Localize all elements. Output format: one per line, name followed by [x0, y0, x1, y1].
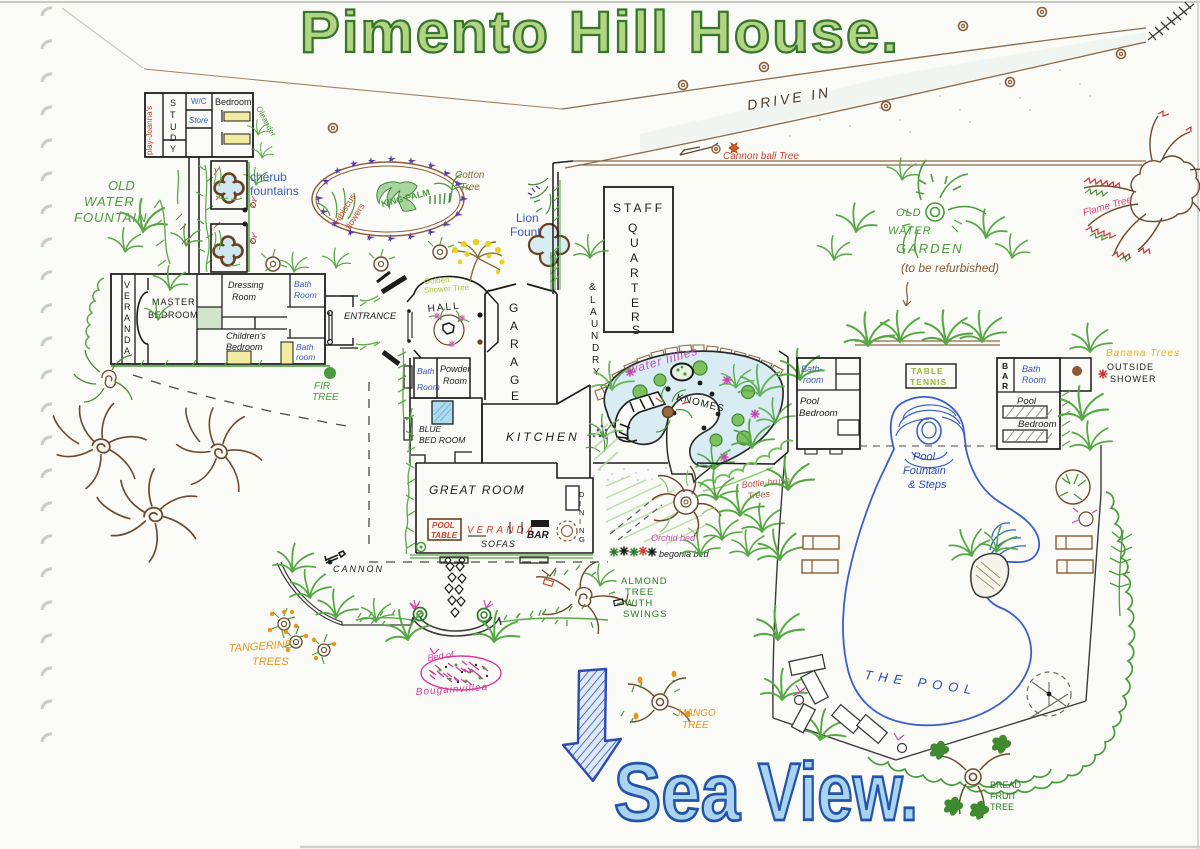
svg-text:WATER: WATER: [84, 194, 135, 209]
svg-text:Y: Y: [170, 144, 176, 154]
svg-text:BREAD: BREAD: [990, 780, 1022, 790]
svg-text:(to be refurbished): (to be refurbished): [901, 261, 999, 275]
svg-text:U: U: [170, 122, 177, 132]
svg-text:A: A: [124, 313, 130, 323]
svg-text:View.: View.: [758, 747, 918, 838]
svg-text:R: R: [510, 337, 519, 351]
svg-text:OUTSIDE: OUTSIDE: [1107, 362, 1154, 372]
svg-text:T: T: [631, 281, 639, 295]
svg-text:Children's: Children's: [226, 331, 266, 341]
svg-text:Bedroom: Bedroom: [1018, 419, 1057, 430]
svg-text:FOUNTAIN: FOUNTAIN: [74, 210, 147, 225]
svg-text:Cannon ball Tree: Cannon ball Tree: [723, 151, 799, 162]
svg-text:OLD: OLD: [108, 178, 135, 193]
svg-text:D: D: [124, 335, 131, 345]
svg-text:W/C: W/C: [191, 97, 207, 106]
svg-text:Room: Room: [294, 290, 317, 300]
svg-text:G: G: [510, 373, 519, 387]
svg-text:A: A: [630, 251, 638, 265]
svg-text:Room: Room: [417, 382, 440, 392]
svg-text:Bath: Bath: [1022, 364, 1041, 374]
svg-text:N: N: [579, 526, 584, 535]
svg-text:U: U: [630, 236, 639, 250]
svg-text:TENNIS: TENNIS: [910, 377, 947, 387]
svg-text:Room: Room: [1022, 375, 1047, 385]
svg-text:D: D: [170, 133, 177, 143]
svg-text:G: G: [509, 301, 518, 315]
svg-text:Tree: Tree: [460, 182, 480, 193]
svg-text:FRUIT: FRUIT: [990, 791, 1017, 801]
svg-text:Fountain: Fountain: [903, 465, 946, 477]
svg-text:A: A: [510, 319, 518, 333]
svg-text:N: N: [579, 508, 584, 517]
svg-text:KITCHEN: KITCHEN: [506, 430, 580, 444]
svg-text:Q: Q: [628, 221, 637, 235]
svg-text:T: T: [170, 110, 176, 120]
svg-text:Pimento Hill House.: Pimento Hill House.: [300, 0, 900, 65]
svg-text:I: I: [579, 499, 581, 508]
svg-text:S: S: [170, 98, 176, 108]
svg-text:FIR: FIR: [314, 381, 330, 392]
svg-text:fountains: fountains: [250, 184, 299, 198]
svg-text:room: room: [803, 375, 824, 385]
svg-text:Banana Trees: Banana Trees: [1106, 348, 1180, 359]
svg-text:U: U: [591, 319, 598, 330]
svg-text:WITH: WITH: [625, 598, 653, 609]
svg-text:ENTRANCE: ENTRANCE: [344, 311, 397, 322]
svg-text:A: A: [1002, 371, 1008, 381]
svg-text:A: A: [510, 355, 518, 369]
svg-text:S: S: [632, 323, 640, 337]
svg-text:TREE: TREE: [625, 587, 654, 598]
svg-text:SHOWER: SHOWER: [1110, 374, 1157, 384]
svg-text:Bath-: Bath-: [801, 364, 823, 374]
svg-text:B: B: [1002, 361, 1008, 371]
svg-text:Cotton: Cotton: [455, 170, 485, 181]
svg-text:BLUE: BLUE: [419, 424, 442, 434]
svg-text:R: R: [592, 355, 599, 366]
svg-text:OLD: OLD: [896, 207, 922, 219]
svg-text:Room: Room: [232, 292, 257, 302]
svg-text:L: L: [590, 295, 596, 306]
svg-text:BAR: BAR: [527, 530, 549, 541]
svg-text:MASTER: MASTER: [152, 297, 196, 307]
svg-text:D: D: [592, 343, 599, 354]
svg-text:G: G: [579, 535, 585, 544]
svg-text:I: I: [579, 517, 581, 526]
svg-text:TREE: TREE: [990, 802, 1014, 812]
svg-text:cherub: cherub: [250, 170, 287, 184]
svg-text:V: V: [124, 280, 130, 290]
svg-text:CANNON: CANNON: [333, 564, 384, 574]
svg-text:Bath: Bath: [296, 342, 314, 352]
svg-text:Sea: Sea: [614, 747, 741, 838]
svg-text:R: R: [630, 266, 639, 280]
svg-text:D: D: [579, 490, 585, 499]
svg-text:Pool: Pool: [1017, 396, 1037, 407]
svg-text:R: R: [1002, 381, 1008, 391]
svg-text:POOL: POOL: [432, 521, 455, 530]
svg-text:Lion: Lion: [516, 211, 539, 225]
svg-text:SWINGS: SWINGS: [623, 609, 668, 620]
svg-text:TREES: TREES: [252, 656, 289, 668]
svg-text:SOFAS: SOFAS: [481, 539, 516, 549]
svg-text:R: R: [631, 310, 640, 324]
svg-text:TREE: TREE: [312, 392, 339, 403]
svg-text:Store: Store: [189, 116, 209, 125]
svg-text:Bath: Bath: [417, 366, 435, 376]
svg-text:TABLE: TABLE: [911, 366, 944, 376]
svg-text:Room: Room: [443, 376, 468, 386]
svg-text:E: E: [511, 389, 519, 403]
svg-text:Powder: Powder: [440, 364, 472, 374]
svg-text:Bath: Bath: [294, 279, 312, 289]
svg-text:STAFF: STAFF: [613, 201, 665, 215]
svg-text:Pool: Pool: [913, 451, 936, 463]
svg-text:ALMOND: ALMOND: [621, 576, 668, 587]
svg-text:A: A: [590, 307, 597, 318]
svg-text:room: room: [296, 352, 315, 362]
svg-text:TABLE: TABLE: [431, 531, 458, 540]
svg-text:E: E: [631, 296, 639, 310]
svg-text:play-Joanna's: play-Joanna's: [145, 106, 154, 155]
svg-text:N: N: [124, 324, 131, 334]
svg-text:&: &: [589, 282, 596, 293]
svg-text:N: N: [591, 331, 598, 342]
svg-text:A: A: [124, 346, 130, 356]
svg-text:& Steps: & Steps: [908, 479, 947, 491]
svg-text:MANGO: MANGO: [678, 708, 716, 719]
svg-text:Bedroom: Bedroom: [215, 97, 252, 107]
svg-text:BED ROOM: BED ROOM: [419, 435, 466, 445]
svg-text:WATER: WATER: [888, 225, 932, 237]
svg-text:TREE: TREE: [682, 720, 709, 731]
svg-text:E: E: [124, 291, 130, 301]
svg-text:R: R: [124, 302, 131, 312]
svg-text:Dressing: Dressing: [228, 280, 264, 290]
svg-text:GARDEN: GARDEN: [896, 241, 964, 256]
svg-text:VERANDA: VERANDA: [467, 525, 536, 536]
svg-text:Bedroom: Bedroom: [799, 408, 838, 419]
svg-text:Pool: Pool: [800, 396, 820, 407]
svg-text:GREAT ROOM: GREAT ROOM: [429, 483, 525, 497]
